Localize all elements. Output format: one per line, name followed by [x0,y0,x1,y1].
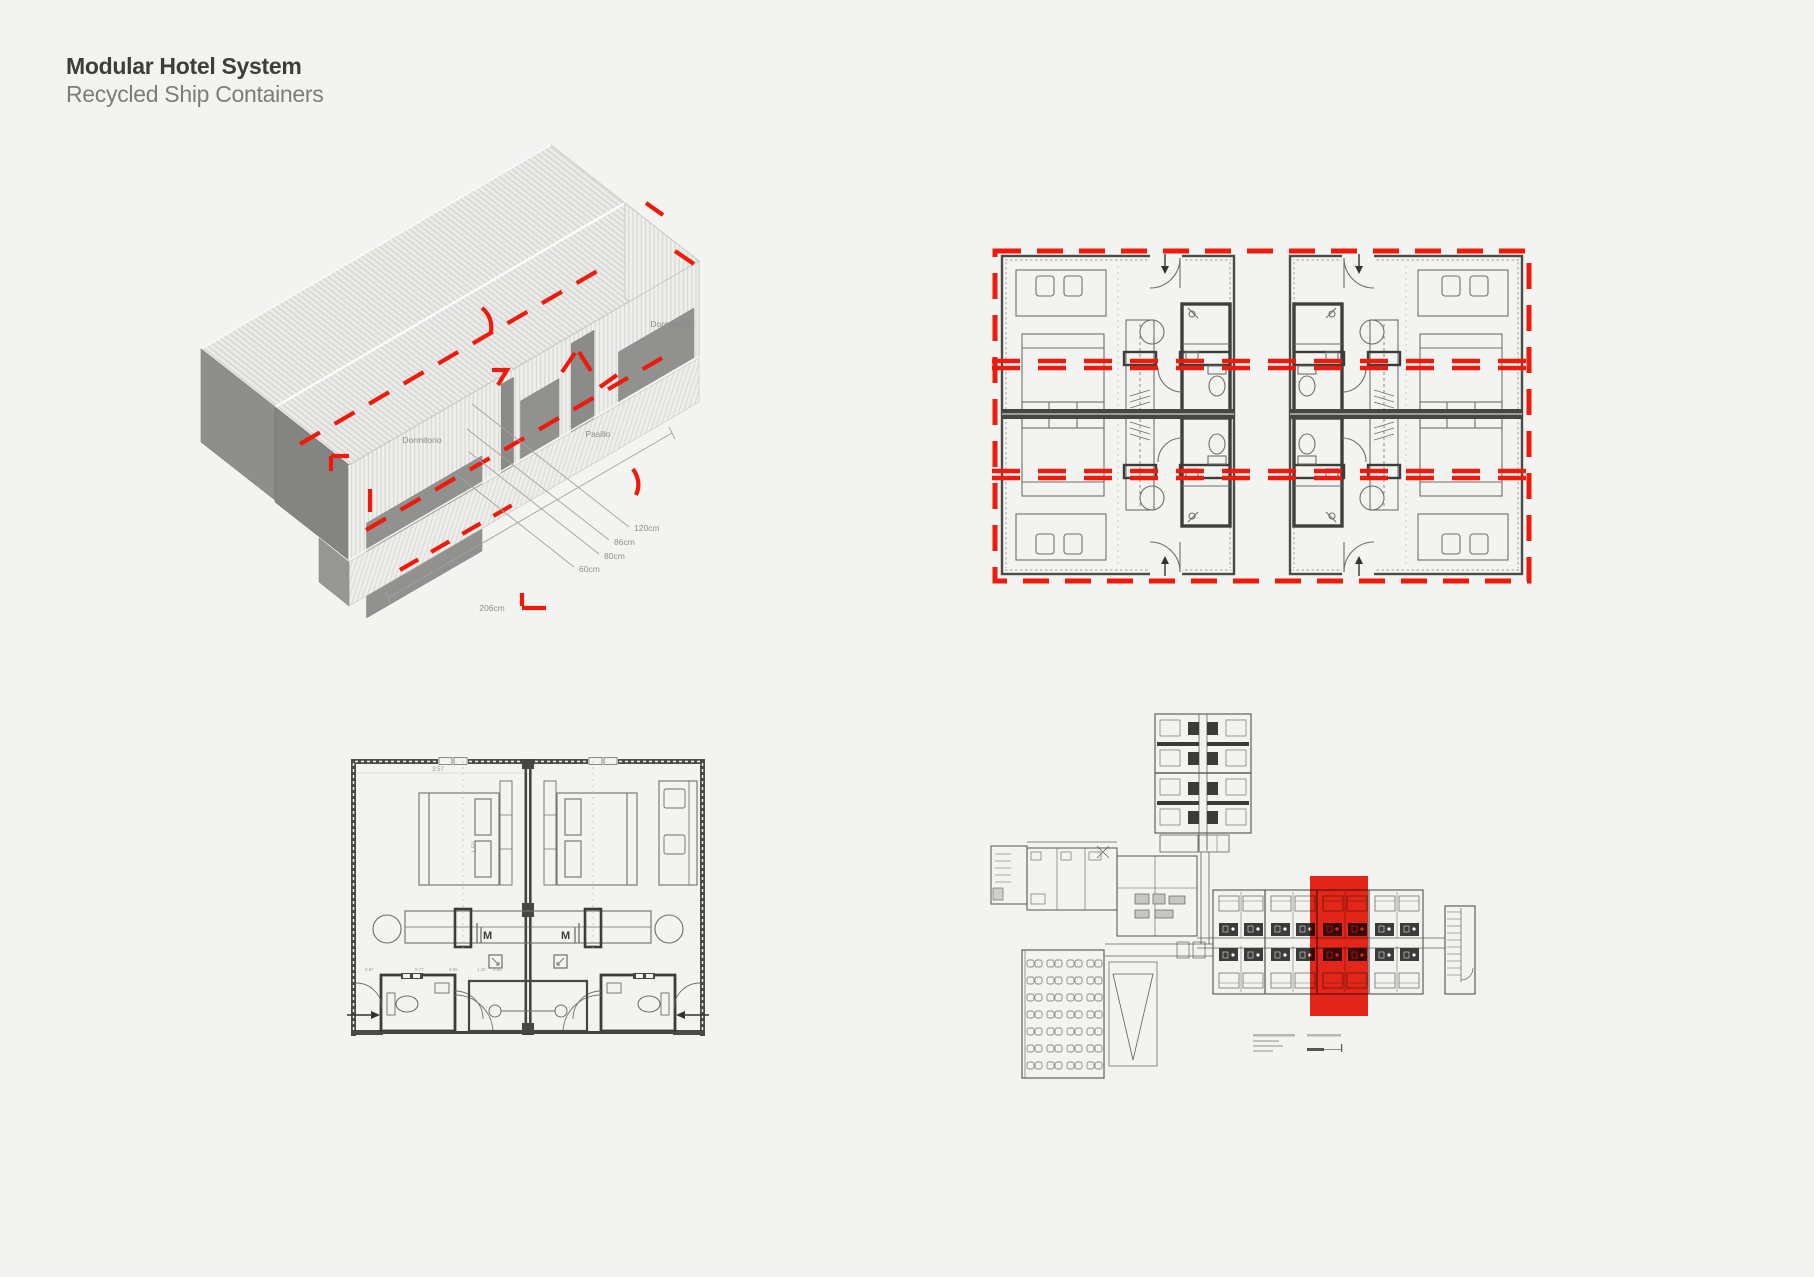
stair-tower [1445,906,1475,994]
dim-row-item: 1.20 [477,967,486,972]
dimension-labels: 120cm 86cm 80cm 60cm 206cm [479,523,659,613]
room-right [544,757,709,1034]
scale-bar [1307,1044,1342,1052]
dimension-label: 86cm [614,537,635,547]
dimension-label-total: 206cm [479,603,505,613]
dim-width: 3.57 [432,767,444,773]
dim-row-item: 0.85 [493,967,502,972]
kitchen-block [1117,856,1197,936]
label-dormitorio-right: Dormitorio [650,319,689,329]
red-highlight-overlay [1310,876,1368,1016]
dimension-label: 60cm [579,564,600,574]
axonometric-container-diagram: 120cm 86cm 80cm 60cm 206cm Dormitorio Pa… [170,140,810,660]
connector-corridor [1201,852,1209,944]
dimension-label: 120cm [634,523,660,533]
dim-row-item: 0.87 [365,967,374,972]
minibar-label-right: M [561,930,570,942]
service-block [1027,848,1117,910]
north-room-wing [1155,714,1251,852]
label-pasillo: Pasillo [585,429,610,439]
main-corridor [1105,942,1213,958]
minibar-label-left: M [483,930,492,942]
room-left [347,757,512,1034]
container-walls-plan [351,759,705,1036]
dining-tables [1027,960,1102,1069]
legend [1253,1034,1342,1052]
dim-row-item: 0.77 [415,967,424,972]
room-detail-plan: M M 3.57 1.50 0.87 0.77 0.85 1.20 0.85 [343,753,713,1043]
label-dormitorio-left: Dormitorio [402,435,441,445]
header: Modular Hotel System Recycled Ship Conta… [66,52,323,108]
module-left [1002,254,1234,576]
poster-page: Modular Hotel System Recycled Ship Conta… [0,0,1814,1277]
dimension-label: 80cm [604,551,625,561]
dim-row-item: 0.85 [449,967,458,972]
page-subtitle: Recycled Ship Containers [66,80,323,108]
dim-bed: 1.50 [472,841,478,853]
entrance-block [991,842,1117,904]
page-title: Modular Hotel System [66,52,323,80]
sofa [659,781,697,885]
site-plan [985,698,1565,1103]
module-pair-floorplan [992,248,1532,588]
module-right [1290,254,1522,576]
ramp-triangle [1109,962,1157,1066]
party-wall [522,759,534,1035]
